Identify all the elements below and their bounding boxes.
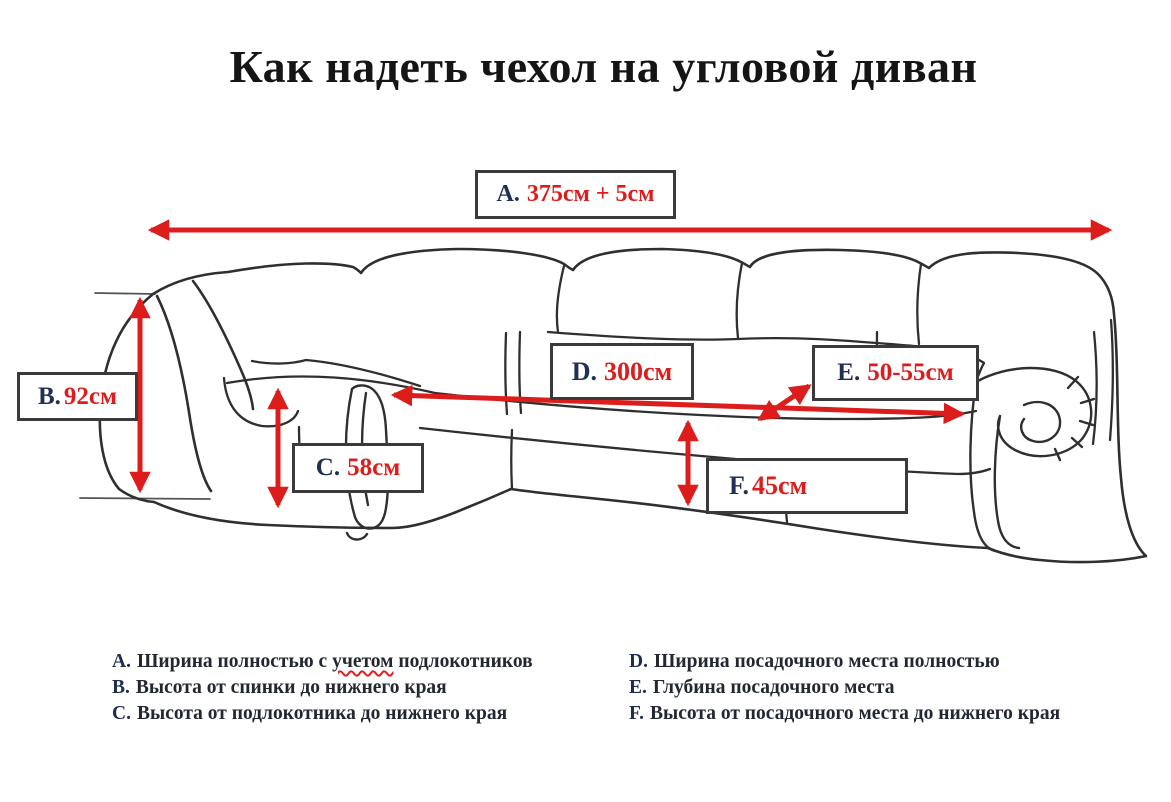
legend-item-d: D.Ширина посадочного места полностью bbox=[629, 649, 1060, 675]
legend-text-e: Глубина посадочного места bbox=[653, 677, 895, 698]
legend-item-b: B.Высота от спинки до нижнего края bbox=[112, 675, 533, 701]
legend-text-a-pre: Ширина полностью с bbox=[137, 651, 332, 672]
measurement-box-e: E. 50-55см bbox=[812, 345, 979, 401]
legend-item-e: E.Глубина посадочного места bbox=[629, 675, 1060, 701]
measurement-box-f: F. 45см bbox=[706, 458, 908, 514]
legend-text-f: Высота от посадочного места до нижнего к… bbox=[650, 703, 1060, 724]
measurement-box-d: D. 300см bbox=[550, 343, 694, 400]
legend-text-a-post: подлокотников bbox=[393, 651, 532, 672]
legend-letter-b: B. bbox=[112, 677, 130, 698]
legend-letter-f: F. bbox=[629, 703, 644, 724]
measurement-value-e: 50-55см bbox=[867, 359, 953, 387]
legend-item-a: A.Ширина полностью с учетом подлокотнико… bbox=[112, 649, 533, 675]
legend-letter-d: D. bbox=[629, 651, 648, 672]
measurement-box-c: C. 58см bbox=[292, 443, 424, 493]
legend-letter-c: C. bbox=[112, 703, 131, 724]
measurement-value-a: 375см + 5см bbox=[527, 181, 655, 208]
measurement-letter-d: D. bbox=[572, 357, 597, 387]
arrow-e-seat-depth bbox=[760, 386, 809, 419]
sofa-outline bbox=[100, 249, 1146, 562]
legend-item-c: C.Высота от подлокотника до нижнего края bbox=[112, 701, 533, 727]
measurement-value-d: 300см bbox=[604, 357, 672, 387]
measurement-letter-e: E. bbox=[837, 359, 860, 387]
legend-item-f: F.Высота от посадочного места до нижнего… bbox=[629, 701, 1060, 727]
legend-text-c: Высота от подлокотника до нижнего края bbox=[137, 703, 507, 724]
legend-text-d: Ширина посадочного места полностью bbox=[654, 651, 1000, 672]
measurement-value-b: 92см bbox=[64, 383, 117, 411]
measurement-box-a: A. 375см + 5см bbox=[475, 170, 676, 219]
measurement-value-c: 58см bbox=[347, 454, 400, 482]
measurement-letter-a: A. bbox=[496, 181, 519, 208]
measurement-box-b: B. 92см bbox=[17, 372, 138, 421]
legend-letter-e: E. bbox=[629, 677, 647, 698]
legend-right-column: D.Ширина посадочного места полностью E.Г… bbox=[629, 649, 1060, 727]
measurement-value-f: 45см bbox=[752, 471, 807, 501]
measurement-letter-c: C. bbox=[316, 454, 340, 482]
measurement-letter-b: B. bbox=[38, 383, 61, 411]
legend-text-a-misspelled: учетом bbox=[332, 651, 393, 672]
measurement-letter-f: F. bbox=[729, 471, 749, 501]
legend-text-b: Высота от спинки до нижнего края bbox=[136, 677, 447, 698]
measurement-diagram-page: Как надеть чехол на угловой диван A. bbox=[0, 0, 1171, 802]
legend-letter-a: A. bbox=[112, 651, 131, 672]
legend-left-column: A.Ширина полностью с учетом подлокотнико… bbox=[112, 649, 533, 727]
